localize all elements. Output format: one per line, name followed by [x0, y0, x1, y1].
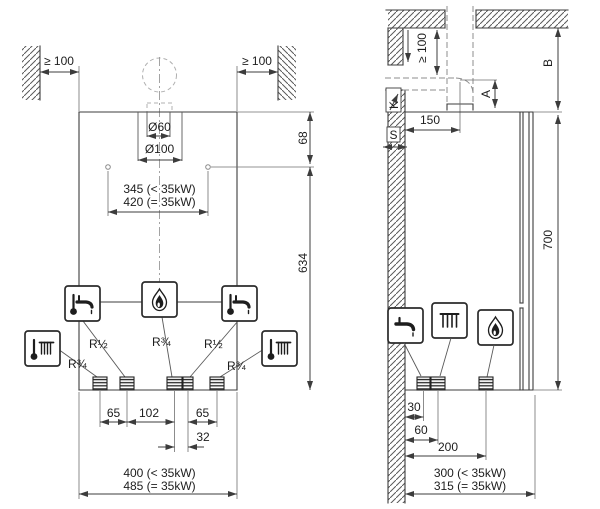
mounting-holes-dimension: 345 (< 35kW) 420 (= 35kW): [106, 165, 211, 216]
boiler-installation-dimensions-page: ≥ 100 ≥ 100 Ø60 Ø100: [0, 0, 600, 509]
dim-a-label: A: [479, 90, 493, 98]
dim-150: 150: [405, 113, 460, 130]
front-left-wall: [22, 46, 40, 100]
flue-inner-diameter-label: Ø60: [148, 120, 171, 134]
dim-b-label: B: [541, 59, 555, 67]
front-right-wall: [278, 46, 296, 100]
side-connector-depth-dimensions: 30 60 200: [405, 391, 486, 460]
spacing-65-left-label: 65: [107, 406, 121, 420]
depth-small-label: 300 (< 35kW): [434, 466, 506, 480]
heating-right-symbol: [262, 331, 297, 366]
spacing-65-right-label: 65: [196, 406, 210, 420]
boiler-side-outline: [405, 112, 562, 390]
side-pipe-connectors: [417, 377, 493, 390]
mounting-width-small-label: 345 (< 35kW): [123, 182, 195, 196]
pipe-label-r34-right: R¾: [227, 359, 247, 373]
wall-lintel: [388, 28, 403, 65]
side-clearance-top-label: ≥ 100: [415, 33, 429, 63]
heating-symbol-side: [432, 303, 467, 338]
depth-60-label: 60: [414, 423, 428, 437]
width-small-label: 400 (< 35kW): [123, 466, 195, 480]
front-connector-spacing-dimensions: 65 102 65 32: [100, 391, 217, 452]
depth-200-label: 200: [438, 440, 458, 454]
installation-dimensions-diagram: ≥ 100 ≥ 100 Ø60 Ø100: [0, 0, 600, 509]
side-clearance-top-dimension: ≥ 100: [408, 30, 437, 75]
dim-a: A: [479, 80, 495, 108]
side-overall-depth-dimension: 300 (< 35kW) 315 (= 35kW): [405, 395, 535, 499]
front-clearance-right-label: ≥ 100: [242, 54, 272, 68]
dim-k: K: [386, 88, 401, 112]
side-view-drawing: ≥ 100 A B K S 150: [383, 6, 568, 503]
mounting-width-large-label: 420 (= 35kW): [123, 195, 195, 209]
dim-700-label: 700: [541, 230, 555, 250]
width-large-label: 485 (= 35kW): [123, 479, 195, 493]
pipe-label-r12-right: R½: [204, 337, 223, 351]
depth-30-label: 30: [407, 400, 421, 414]
hot-water-left-symbol: [65, 286, 100, 321]
flue-diameter-dimensions: Ø60 Ø100: [138, 112, 182, 161]
front-clearance-right-dimension: ≥ 100: [237, 54, 278, 111]
dim-634-label: 634: [296, 253, 310, 273]
front-pipe-connectors: [93, 377, 224, 390]
pipe-label-r34-left: R¾: [68, 357, 88, 371]
ceiling: [386, 10, 568, 28]
dim-s-label: S: [389, 128, 397, 142]
pipe-label-r12-left: R½: [89, 337, 108, 351]
gas-symbol-side: [478, 310, 513, 345]
dim-k-label: K: [387, 101, 401, 109]
front-clearance-left-dimension: ≥ 100: [40, 54, 79, 111]
heating-left-symbol: [25, 331, 60, 366]
dim-68-label: 68: [296, 131, 310, 145]
hot-water-right-symbol: [222, 286, 257, 321]
water-symbol-side: [388, 308, 423, 343]
depth-large-label: 315 (= 35kW): [434, 479, 506, 493]
spacing-32-label: 32: [196, 430, 210, 444]
front-clearance-left-label: ≥ 100: [44, 54, 74, 68]
dim-700: 700: [541, 115, 558, 390]
dim-b: B: [541, 28, 558, 110]
gas-symbol-front: [142, 282, 177, 317]
pipe-label-r34-center: R¾: [152, 335, 172, 349]
front-view-drawing: ≥ 100 ≥ 100 Ø60 Ø100: [22, 46, 314, 499]
side-wall: [388, 90, 405, 503]
dim-150-label: 150: [420, 113, 440, 127]
flue-outer-diameter-label: Ø100: [145, 142, 175, 156]
spacing-102-label: 102: [139, 406, 159, 420]
